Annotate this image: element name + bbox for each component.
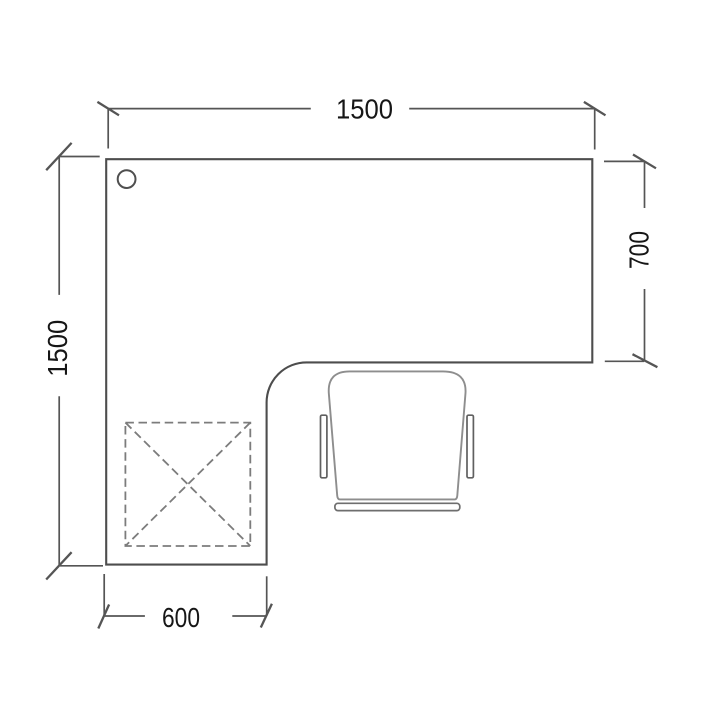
svg-text:700: 700 — [624, 231, 655, 269]
svg-text:1500: 1500 — [42, 320, 73, 377]
svg-text:1500: 1500 — [336, 94, 393, 125]
svg-text:600: 600 — [162, 602, 200, 633]
